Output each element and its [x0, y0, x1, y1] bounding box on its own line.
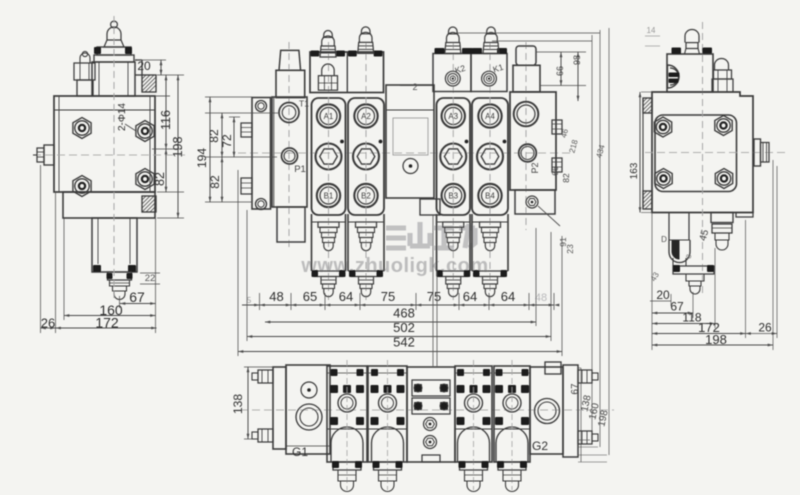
svg-text:D: D [661, 235, 667, 244]
svg-text:163: 163 [629, 162, 640, 179]
svg-text:542: 542 [393, 335, 415, 350]
svg-text:20: 20 [656, 288, 670, 302]
svg-text:66: 66 [555, 66, 565, 76]
svg-text:64: 64 [339, 289, 353, 304]
svg-text:67: 67 [129, 289, 145, 305]
svg-text:194: 194 [195, 148, 209, 168]
svg-text:26: 26 [758, 321, 772, 335]
svg-text:T1: T1 [299, 99, 309, 109]
svg-text:75: 75 [427, 289, 441, 304]
svg-text:65: 65 [303, 289, 317, 304]
svg-text:P1: P1 [294, 164, 306, 175]
svg-text:198: 198 [171, 137, 185, 158]
svg-text:P2: P2 [530, 162, 540, 173]
svg-text:64: 64 [463, 289, 477, 304]
svg-text:75: 75 [381, 289, 395, 304]
svg-text:2: 2 [412, 82, 417, 92]
svg-text:14: 14 [647, 26, 656, 35]
svg-text:98: 98 [572, 55, 582, 65]
svg-text:82: 82 [153, 172, 167, 186]
svg-text:48: 48 [535, 292, 547, 304]
svg-text:82: 82 [207, 129, 221, 143]
svg-text:82: 82 [208, 175, 222, 189]
svg-text:116: 116 [159, 110, 173, 130]
svg-text:5: 5 [247, 296, 252, 305]
svg-text:G2: G2 [532, 439, 548, 453]
svg-text:22: 22 [145, 273, 156, 284]
svg-text:502: 502 [393, 320, 415, 335]
svg-text:2-Φ14: 2-Φ14 [117, 103, 128, 131]
svg-text:66: 66 [550, 166, 560, 176]
svg-text:48: 48 [269, 289, 283, 304]
svg-text:G1: G1 [292, 445, 308, 459]
svg-text:468: 468 [393, 306, 415, 321]
svg-text:64: 64 [501, 289, 515, 304]
svg-text:67: 67 [570, 383, 581, 395]
svg-text:138: 138 [231, 394, 245, 414]
svg-text:82: 82 [561, 173, 571, 183]
svg-text:72: 72 [220, 134, 234, 148]
svg-text:20: 20 [137, 59, 151, 73]
svg-text:23: 23 [565, 244, 575, 254]
